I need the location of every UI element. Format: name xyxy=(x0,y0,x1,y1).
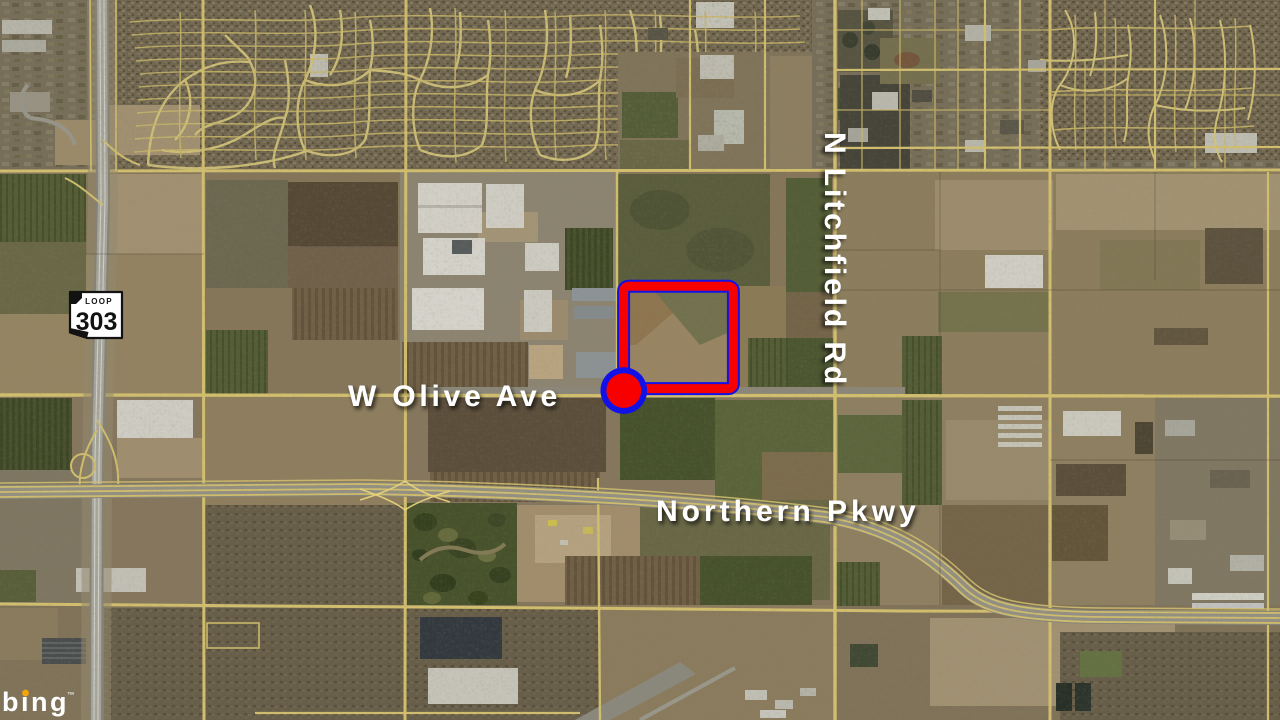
svg-text:N Litchfield Rd: N Litchfield Rd xyxy=(818,132,851,387)
svg-text:LOOP: LOOP xyxy=(85,297,113,306)
svg-text:bıng: bıng xyxy=(2,687,69,717)
svg-text:™: ™ xyxy=(67,690,75,699)
svg-text:Northern Pkwy: Northern Pkwy xyxy=(656,495,920,528)
svg-text:W Olive Ave: W Olive Ave xyxy=(348,380,561,413)
svg-text:303: 303 xyxy=(76,308,118,336)
